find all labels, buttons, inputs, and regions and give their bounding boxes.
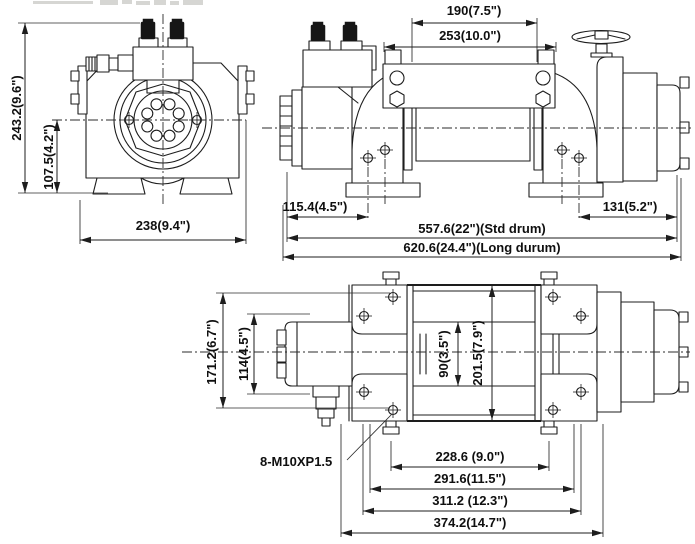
dim-overall-width-label: 238(9.4") <box>136 218 191 233</box>
dim-flange-width-label: 201.5(7.9") <box>470 320 485 385</box>
front-view: 190(7.5") 253(10.0") 115.4(4.5") 131(5.2… <box>262 3 692 261</box>
clutch-handwheel <box>572 31 630 58</box>
dim-gear-offset-label: 131(5.2") <box>603 199 658 214</box>
dim-overall-height-label: 243.2(9.6") <box>9 75 24 140</box>
dim-length-long-label: 620.6(24.4")(Long durum) <box>403 240 560 255</box>
drawing-sheet: 243.2(9.6") 107.5(4.2") 238(9.4") <box>0 0 695 544</box>
top-motor <box>277 322 352 426</box>
dim-motor-depth-label: 114(4.5") <box>236 327 251 381</box>
tie-bar <box>383 50 555 108</box>
gear-housing <box>597 57 689 182</box>
bolt-spec-label: 8-M10XP1.5 <box>260 454 332 469</box>
valve-block-front <box>303 22 372 87</box>
dim-length-std-label: 557.6(22")(Std drum) <box>418 221 546 236</box>
dim-center-height-label: 107.5(4.2") <box>41 124 56 189</box>
dim-tiebar-inner-label: 190(7.5") <box>447 3 502 18</box>
dim-frame-width-label: 291.6(11.5") <box>434 471 506 486</box>
dim-mount-width-label: 311.2 (12.3") <box>432 493 508 508</box>
dim-motor-offset-label: 115.4(4.5") <box>283 199 348 214</box>
dim-drum-width-label: 90(3.5") <box>436 330 451 377</box>
top-view: 171.2(6.7") 114(4.5") 90(3.5") 201.5(7.9… <box>182 272 690 537</box>
hose-fitting-end <box>86 55 133 72</box>
dim-overall-depth-label: 171.2(6.7") <box>204 319 219 384</box>
dim-top-overall-width-label: 374.2(14.7") <box>434 515 507 530</box>
dim-bolt-spacing-label: 228.6 (9.0") <box>435 449 504 464</box>
hose-fitting-top <box>313 386 339 426</box>
cropped-text-remnant <box>33 0 203 5</box>
dim-tiebar-outer-label: 253(10.0") <box>439 28 501 43</box>
end-view: 243.2(9.6") 107.5(4.2") 238(9.4") <box>9 14 254 244</box>
winch-dimension-drawing: 243.2(9.6") 107.5(4.2") 238(9.4") <box>0 0 695 544</box>
